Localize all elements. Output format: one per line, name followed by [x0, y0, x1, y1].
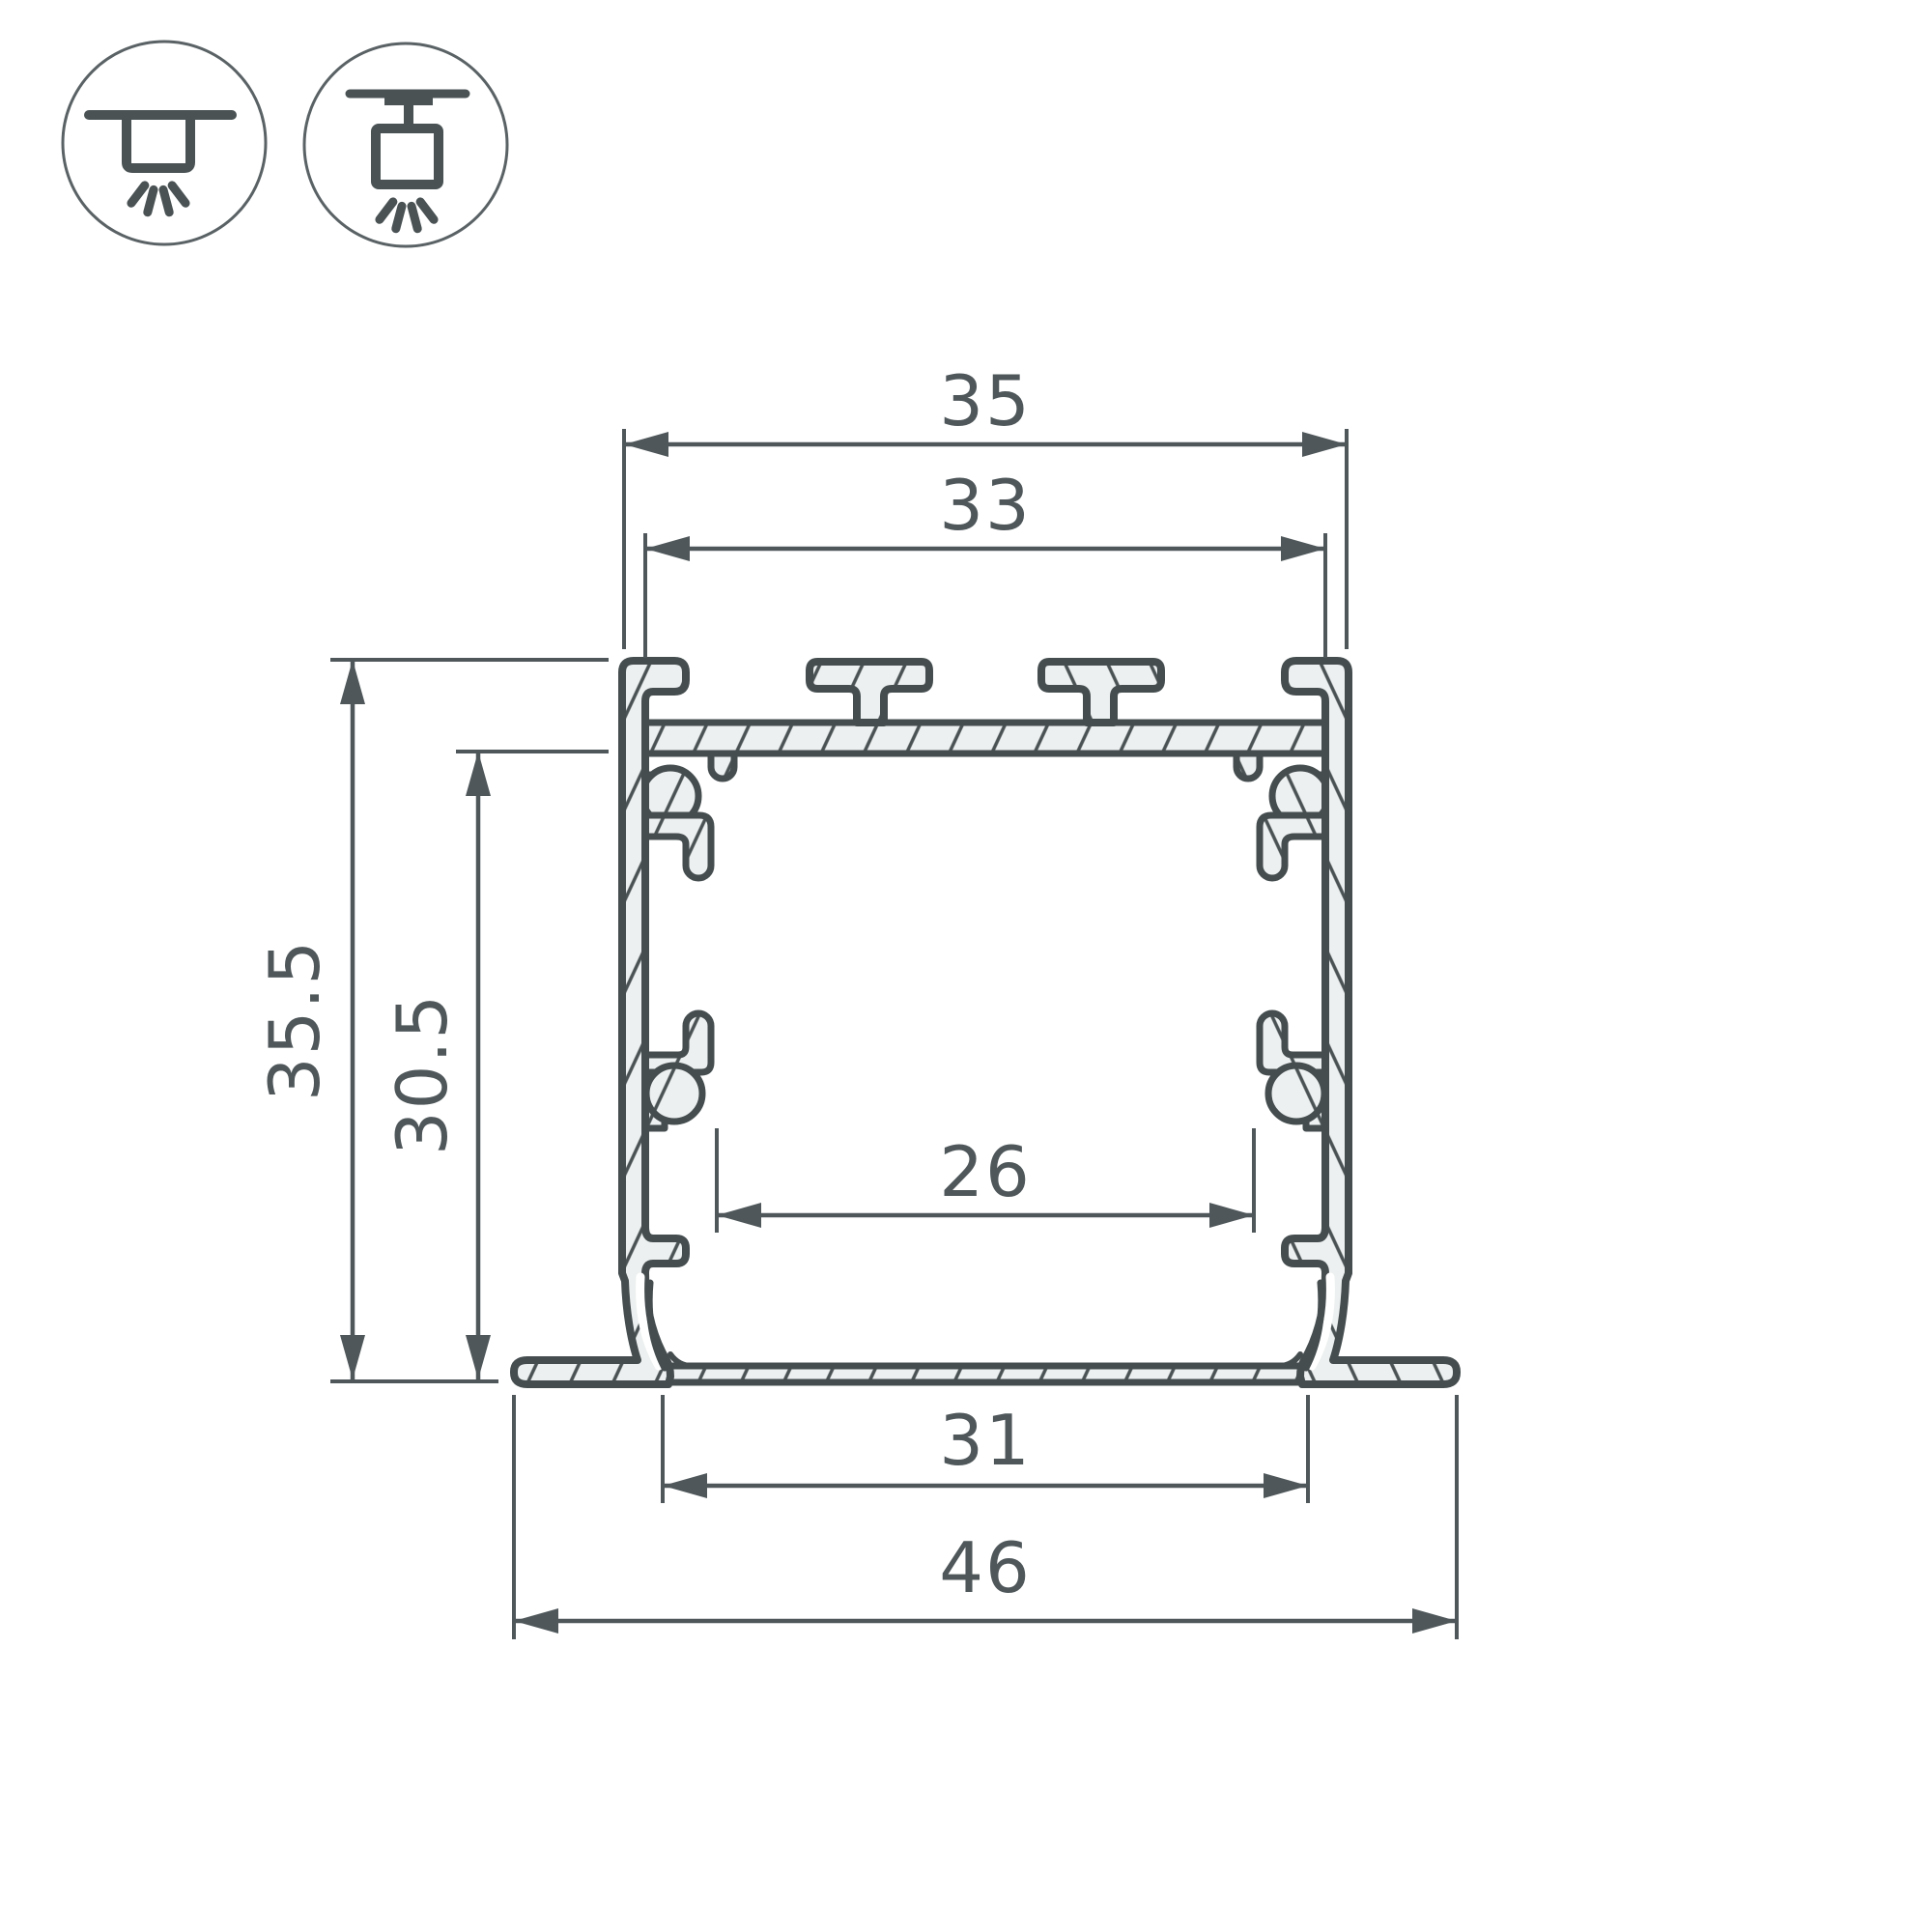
dimension-label: 35.5	[254, 939, 335, 1101]
dimension-31-recess-width: 31	[663, 1395, 1308, 1503]
surface-mount-icon	[304, 43, 507, 246]
profile-cross-section-drawing: 35 33 26 31 46 35.5	[0, 0, 1932, 1932]
dimension-label: 35	[939, 360, 1032, 441]
top-plate	[638, 723, 1333, 753]
recessed-mount-icon	[63, 42, 266, 244]
lower-clip-lobe	[646, 1065, 702, 1122]
bottom-plate	[661, 1366, 1310, 1382]
dimension-33-mounting-slot-width: 33	[645, 465, 1325, 658]
dimension-label: 46	[939, 1527, 1032, 1608]
drawing-page: 35 33 26 31 46 35.5	[0, 0, 1932, 1932]
surface-fixture-box	[376, 128, 439, 185]
dimension-30_5-inner-height: 30.5	[382, 752, 609, 1379]
dimension-26-inner-width: 26	[717, 1128, 1254, 1233]
dimension-label: 26	[939, 1131, 1032, 1212]
top-t-rib	[810, 662, 929, 723]
dimension-label: 31	[939, 1400, 1032, 1481]
dimension-label: 30.5	[382, 993, 463, 1155]
dimension-label: 33	[939, 465, 1032, 546]
